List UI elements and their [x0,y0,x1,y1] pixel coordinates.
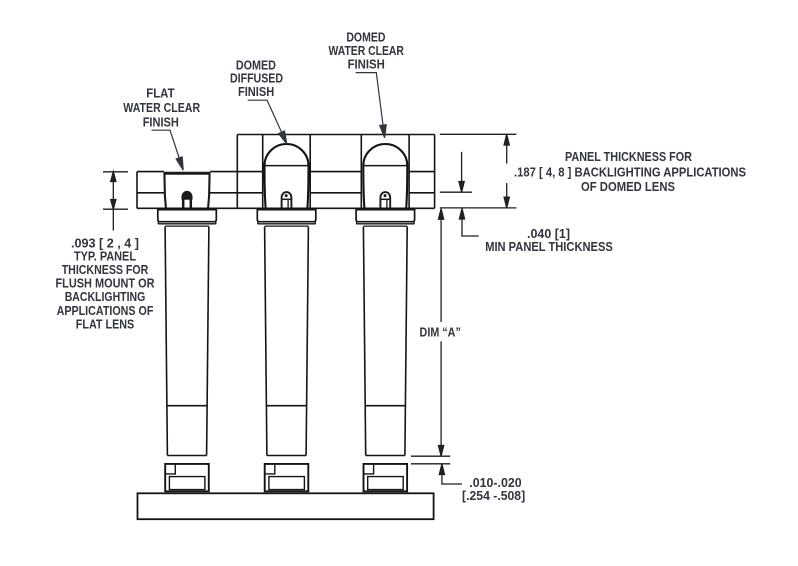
svg-text:[.254 -.508]: [.254 -.508] [462,488,525,503]
svg-text:MIN PANEL THICKNESS: MIN PANEL THICKNESS [485,239,613,254]
svg-text:FLAT: FLAT [146,86,174,101]
svg-text:WATER CLEAR: WATER CLEAR [123,100,200,115]
svg-text:OF DOMED LENS: OF DOMED LENS [581,179,675,194]
svg-text:PANEL THICKNESS FOR: PANEL THICKNESS FOR [565,149,692,164]
svg-text:FINISH: FINISH [143,114,179,129]
svg-text:FLAT LENS: FLAT LENS [76,316,135,331]
svg-text:FINISH: FINISH [348,57,385,72]
svg-text:.187 [ 4, 8 ] BACKLIGHTING APP: .187 [ 4, 8 ] BACKLIGHTING APPLICATIONS [514,164,746,179]
svg-text:DIM “A”: DIM “A” [420,325,461,340]
svg-text:BACKLIGHTING: BACKLIGHTING [65,289,146,304]
svg-text:FINISH: FINISH [238,84,274,99]
